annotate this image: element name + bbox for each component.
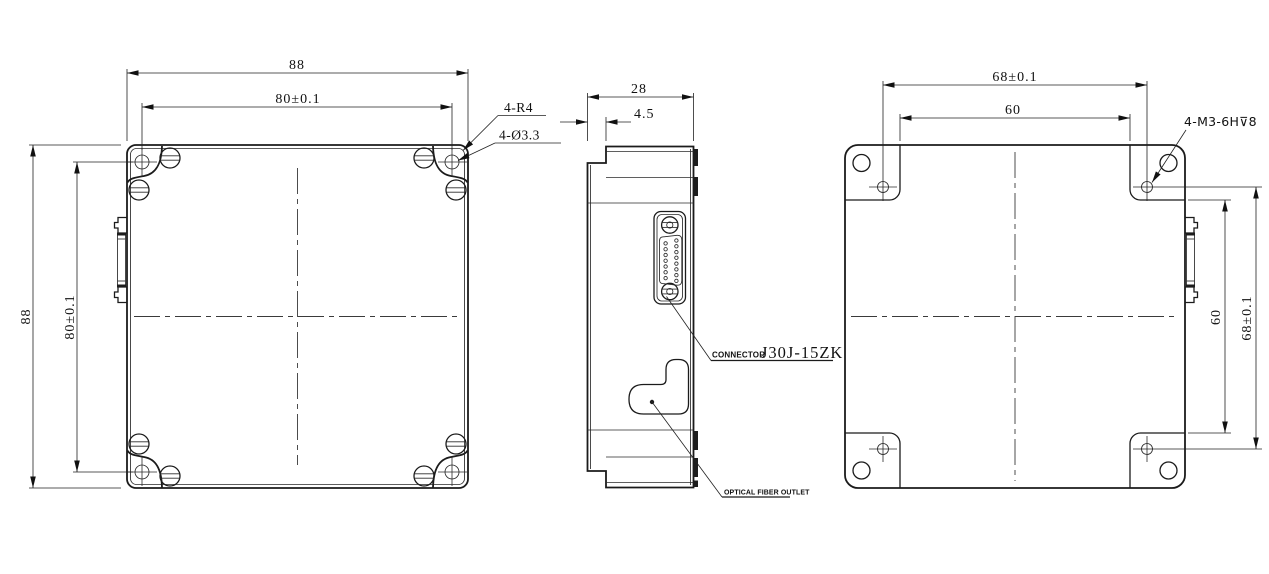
- dsub-jackpost-bottom: [662, 283, 678, 299]
- svg-text:J30J-15ZK: J30J-15ZK: [761, 343, 843, 362]
- svg-text:4.5: 4.5: [634, 107, 655, 122]
- front-label-hole-diameter: 4-Ø3.3: [458, 128, 561, 161]
- dsub-jackpost-top: [662, 217, 678, 233]
- svg-text:4-M3-6H⊽8: 4-M3-6H⊽8: [1184, 114, 1257, 129]
- dsub-connector: [654, 212, 686, 305]
- back-connector-protrusion: [1185, 218, 1198, 303]
- front-view: 88 80±0.1 88 80±0.1 4-R4 4-Ø3.3: [19, 58, 561, 488]
- side-view: 28 4.5 CONNECTOR J30J-15ZK OPTICAL FIBER…: [560, 82, 843, 497]
- front-connector-protrusion: [115, 218, 128, 303]
- svg-text:80±0.1: 80±0.1: [275, 92, 320, 107]
- side-dim-lid-step: 4.5: [560, 107, 655, 141]
- dsub-shell-outer: [654, 212, 686, 305]
- back-dim-height-holes: 68±0.1: [1240, 187, 1256, 449]
- svg-text:88: 88: [289, 58, 305, 73]
- svg-text:68±0.1: 68±0.1: [992, 70, 1037, 85]
- svg-text:88: 88: [19, 309, 34, 325]
- engineering-drawing: 88 80±0.1 88 80±0.1 4-R4 4-Ø3.3: [0, 0, 1269, 574]
- back-dim-width-holes: 68±0.1: [883, 70, 1147, 85]
- svg-text:28: 28: [631, 82, 647, 97]
- front-dim-width-holes: 80±0.1: [142, 92, 452, 150]
- side-lid-seams: [588, 152, 694, 483]
- dsub-pins: [664, 239, 678, 283]
- svg-text:4-Ø3.3: 4-Ø3.3: [499, 128, 540, 143]
- front-dim-height-holes: 80±0.1: [63, 162, 133, 472]
- svg-text:60: 60: [1209, 309, 1224, 325]
- svg-text:68±0.1: 68±0.1: [1240, 295, 1255, 340]
- back-view: 68±0.1 60 60 68±0.1 4-M3-6H⊽8: [845, 70, 1262, 488]
- back-label-thread: 4-M3-6H⊽8: [1152, 114, 1257, 183]
- back-dim-width-pads: 60: [900, 103, 1130, 141]
- svg-text:CONNECTOR: CONNECTOR: [712, 351, 765, 360]
- svg-text:80±0.1: 80±0.1: [63, 294, 78, 339]
- leader-thread: [1152, 130, 1186, 183]
- svg-text:60: 60: [1005, 103, 1021, 118]
- svg-text:OPTICAL FIBER OUTLET: OPTICAL FIBER OUTLET: [724, 490, 810, 497]
- fiber-outlet-cutout: [629, 360, 689, 415]
- drawing-sheet: 88 80±0.1 88 80±0.1 4-R4 4-Ø3.3: [0, 0, 1269, 574]
- svg-text:4-R4: 4-R4: [504, 100, 533, 115]
- back-m3-holes: [869, 81, 1262, 462]
- dsub-dshape: [660, 235, 682, 285]
